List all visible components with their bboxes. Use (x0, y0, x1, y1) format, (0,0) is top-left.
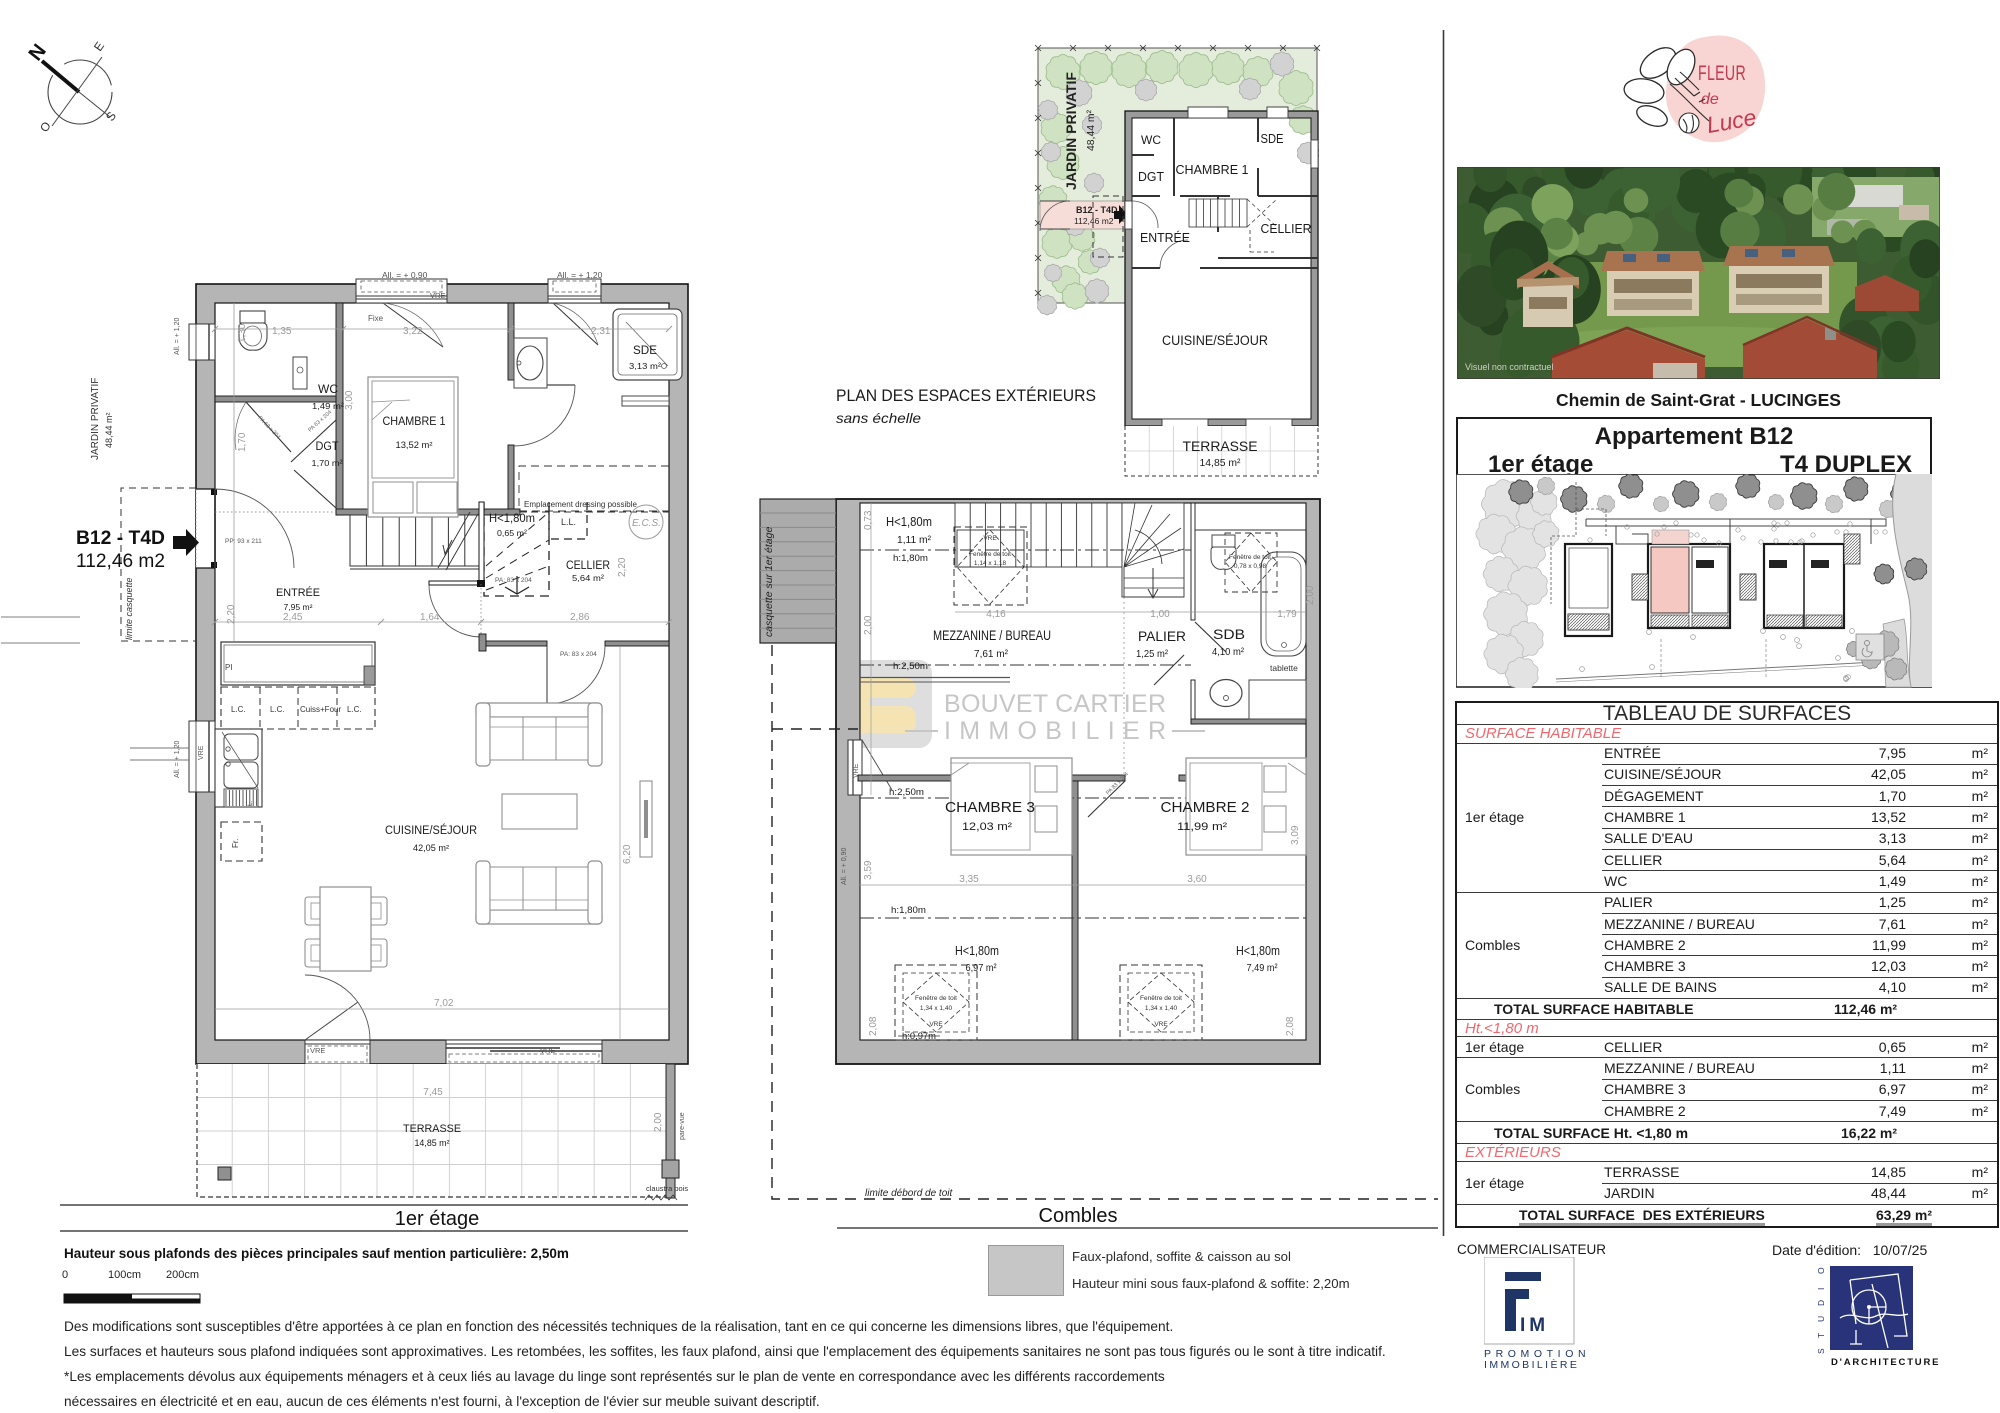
svg-text:7,45: 7,45 (423, 1087, 443, 1098)
svg-text:VRE: VRE (310, 1046, 325, 1055)
svg-text:CHAMBRE 2: CHAMBRE 2 (1161, 800, 1250, 816)
svg-text:All. = + 0,90: All. = + 0,90 (382, 270, 428, 280)
svg-text:3,59: 3,59 (863, 860, 874, 880)
svg-text:IMMOBILIER: IMMOBILIER (944, 717, 1166, 745)
svg-text:VRE: VRE (1154, 1021, 1168, 1028)
svg-text:14,85 m²: 14,85 m² (1200, 457, 1241, 469)
svg-text:1,70: 1,70 (237, 432, 248, 452)
svg-text:Fenêtre de toit: Fenêtre de toit (1229, 554, 1271, 561)
svg-text:O: O (1816, 1267, 1826, 1274)
svg-text:48,44 m²: 48,44 m² (104, 412, 114, 448)
svg-text:7,61 m²: 7,61 m² (974, 648, 1008, 660)
svg-text:Visuel non contractuel: Visuel non contractuel (1465, 362, 1553, 372)
svg-text:casquette sur 1er étage: casquette sur 1er étage (763, 527, 775, 637)
svg-text:1,64: 1,64 (420, 612, 440, 623)
svg-text:2,00: 2,00 (653, 1112, 664, 1132)
svg-text:D: D (1816, 1300, 1826, 1306)
svg-text:2,00: 2,00 (1305, 585, 1316, 605)
svg-text:3,00: 3,00 (344, 390, 355, 410)
svg-text:pare-vue: pare-vue (679, 1112, 686, 1140)
svg-text:limite casquette: limite casquette (124, 577, 134, 640)
svg-text:PA: 83 x 204: PA: 83 x 204 (495, 577, 532, 584)
svg-text:All. = + 1,20: All. = + 1,20 (174, 741, 181, 778)
svg-text:WC: WC (318, 384, 338, 396)
svg-text:limite débord de toit: limite débord de toit (865, 1188, 953, 1199)
svg-text:PA 63 x 204: PA 63 x 204 (307, 409, 333, 433)
svg-text:JARDIN PRIVATIF: JARDIN PRIVATIF (90, 378, 101, 460)
svg-text:H<1,80m: H<1,80m (886, 514, 932, 529)
svg-text:TERRASSE: TERRASSE (403, 1123, 461, 1135)
svg-text:Combles: Combles (1039, 1205, 1118, 1227)
svg-text:5,64 m²: 5,64 m² (572, 573, 604, 583)
svg-text:Fenêtre de toit: Fenêtre de toit (969, 551, 1011, 558)
svg-text:7,95 m²: 7,95 m² (284, 603, 313, 612)
svg-text:U: U (1816, 1316, 1826, 1322)
svg-text:11,99 m²: 11,99 m² (1177, 821, 1227, 833)
svg-text:B12 - T4D: B12 - T4D (1076, 205, 1118, 215)
svg-text:Cuiss+Four: Cuiss+Four (300, 705, 341, 714)
svg-text:h:1,80m: h:1,80m (891, 905, 926, 916)
svg-text:42,05 m²: 42,05 m² (413, 843, 449, 853)
svg-text:Fenêtre de toit: Fenêtre de toit (1140, 995, 1182, 1002)
svg-text:L.C.: L.C. (270, 705, 285, 714)
svg-text:claustra bois: claustra bois (646, 1184, 688, 1193)
svg-text:VRE: VRE (983, 535, 997, 542)
svg-text:E.C.S.: E.C.S. (632, 518, 661, 529)
svg-text:VRE: VRE (430, 291, 445, 300)
svg-text:2,86: 2,86 (570, 612, 590, 623)
svg-text:PP: 93 x 211: PP: 93 x 211 (225, 538, 262, 545)
svg-text:sans échelle: sans échelle (836, 410, 921, 426)
svg-text:h:2,50m: h:2,50m (893, 661, 928, 672)
svg-text:FLEUR: FLEUR (1698, 62, 1746, 85)
svg-text:H<1,80m: H<1,80m (955, 943, 999, 958)
svg-text:L.C.: L.C. (231, 705, 246, 714)
svg-text:2,45: 2,45 (283, 612, 303, 623)
svg-text:2,00: 2,00 (863, 615, 874, 635)
svg-text:Fr.: Fr. (231, 839, 240, 848)
svg-text:CUISINE/SÉJOUR: CUISINE/SÉJOUR (1162, 333, 1268, 348)
svg-text:h:0,97m: h:0,97m (902, 1031, 936, 1042)
svg-text:Emplacement dressing possible: Emplacement dressing possible (524, 500, 637, 509)
svg-text:1er étage: 1er étage (395, 1208, 480, 1230)
svg-text:4,10 m²: 4,10 m² (1212, 646, 1244, 658)
svg-text:PA: 83 x 204: PA: 83 x 204 (560, 651, 597, 658)
svg-text:CHAMBRE 1: CHAMBRE 1 (383, 414, 446, 428)
svg-text:IM: IM (1520, 1315, 1549, 1336)
svg-text:13,52 m²: 13,52 m² (396, 440, 433, 450)
svg-text:MEZZANINE / BUREAU: MEZZANINE / BUREAU (933, 628, 1051, 643)
svg-text:3,35: 3,35 (959, 874, 979, 885)
svg-text:h:2,50m: h:2,50m (889, 787, 924, 798)
svg-text:CHAMBRE 1: CHAMBRE 1 (1176, 162, 1249, 177)
svg-text:H<1,80m: H<1,80m (1236, 943, 1280, 958)
svg-text:SDE: SDE (633, 345, 657, 357)
svg-text:0,65 m²: 0,65 m² (497, 528, 527, 538)
svg-text:1,34 x 1,40: 1,34 x 1,40 (1145, 1005, 1178, 1012)
svg-text:3,09: 3,09 (1290, 825, 1301, 845)
svg-text:D'ARCHITECTURE: D'ARCHITECTURE (1831, 1357, 1940, 1368)
svg-text:0,78 x 0,98: 0,78 x 0,98 (1234, 563, 1267, 570)
svg-text:3,22: 3,22 (403, 326, 423, 337)
svg-text:JARDIN PRIVATIF: JARDIN PRIVATIF (1063, 72, 1079, 190)
svg-text:S: S (1816, 1348, 1826, 1354)
svg-text:PI: PI (225, 663, 233, 672)
svg-text:48,44 m²: 48,44 m² (1085, 110, 1097, 151)
svg-text:3,13 m²: 3,13 m² (629, 361, 661, 371)
svg-text:7,02: 7,02 (434, 998, 454, 1009)
svg-text:6,97 m²: 6,97 m² (966, 962, 997, 974)
svg-text:h:1,80m: h:1,80m (893, 553, 928, 564)
svg-text:N: N (25, 40, 51, 65)
svg-text:VRE: VRE (198, 745, 205, 760)
svg-text:All. = + 1,20: All. = + 1,20 (557, 270, 603, 280)
svg-text:PA 63 x 204: PA 63 x 204 (257, 415, 282, 440)
svg-text:Fixe: Fixe (368, 314, 384, 323)
svg-text:VRE: VRE (540, 1046, 555, 1055)
svg-text:SDE: SDE (1261, 132, 1284, 146)
svg-text:All. = + 1,20: All. = + 1,20 (174, 318, 181, 355)
svg-text:DGT: DGT (1138, 170, 1164, 184)
svg-text:All. = + 0,90: All. = + 0,90 (841, 848, 848, 885)
svg-text:S: S (103, 109, 119, 124)
svg-text:TERRASSE: TERRASSE (1183, 439, 1258, 454)
svg-text:tablette: tablette (1270, 663, 1298, 673)
svg-text:BOUVET CARTIER: BOUVET CARTIER (944, 690, 1166, 718)
svg-text:12,03 m²: 12,03 m² (962, 821, 1012, 833)
svg-text:PLAN DES ESPACES EXTÉRIEURS: PLAN DES ESPACES EXTÉRIEURS (836, 386, 1096, 405)
svg-text:DGT: DGT (316, 441, 339, 453)
svg-text:112,46 m2: 112,46 m2 (76, 551, 165, 572)
svg-text:L.C.: L.C. (347, 705, 362, 714)
svg-text:7,49 m²: 7,49 m² (1247, 962, 1278, 974)
svg-text:WC: WC (1141, 133, 1161, 147)
svg-text:PALIER: PALIER (1138, 629, 1186, 644)
svg-text:CHAMBRE 3: CHAMBRE 3 (945, 800, 1035, 816)
svg-text:6,20: 6,20 (622, 844, 633, 864)
svg-text:T: T (1816, 1333, 1826, 1338)
svg-text:VRE: VRE (929, 1021, 943, 1028)
svg-text:112,46 m2: 112,46 m2 (1074, 216, 1114, 226)
svg-text:1,25 m²: 1,25 m² (1136, 648, 1168, 660)
svg-text:I: I (1816, 1288, 1826, 1290)
svg-text:4,16: 4,16 (986, 609, 1006, 620)
svg-text:1,30: 1,30 (237, 323, 248, 343)
svg-text:3,60: 3,60 (1187, 874, 1207, 885)
svg-text:200cm: 200cm (166, 1269, 199, 1281)
svg-text:1,34 x 1,40: 1,34 x 1,40 (920, 1005, 953, 1012)
svg-text:Fenêtre de toit: Fenêtre de toit (915, 995, 957, 1002)
svg-text:2,20: 2,20 (617, 557, 628, 577)
svg-text:B12 - T4D: B12 - T4D (76, 528, 165, 549)
svg-text:CELLIER: CELLIER (1261, 221, 1312, 236)
svg-text:L.: L. (247, 800, 254, 806)
svg-text:100cm: 100cm (108, 1269, 141, 1281)
svg-text:1,14 x 1,18: 1,14 x 1,18 (974, 560, 1007, 567)
svg-text:1,11 m²: 1,11 m² (897, 534, 931, 546)
svg-text:ENTRÉE: ENTRÉE (1140, 230, 1190, 245)
svg-text:1,79: 1,79 (1277, 609, 1297, 620)
svg-text:O: O (37, 119, 54, 135)
svg-text:2,08: 2,08 (1285, 1016, 1296, 1036)
svg-text:14,85 m²: 14,85 m² (415, 1138, 450, 1148)
svg-text:IMMOBILIÈRE: IMMOBILIÈRE (1484, 1358, 1579, 1369)
svg-text:ENTRÉE: ENTRÉE (276, 586, 320, 599)
svg-text:2,20: 2,20 (226, 604, 237, 624)
svg-text:H<1,80m: H<1,80m (489, 511, 535, 525)
svg-text:L.L.: L.L. (561, 517, 576, 527)
svg-text:0,73: 0,73 (863, 510, 874, 530)
svg-text:1,70 m²: 1,70 m² (312, 458, 343, 468)
svg-text:1,00: 1,00 (1150, 609, 1170, 620)
svg-text:2,31: 2,31 (591, 326, 611, 337)
svg-text:SDB: SDB (1213, 627, 1245, 642)
svg-text:0: 0 (62, 1269, 68, 1281)
svg-text:CUISINE/SÉJOUR: CUISINE/SÉJOUR (385, 824, 477, 837)
svg-text:2,08: 2,08 (868, 1016, 879, 1036)
svg-text:CELLIER: CELLIER (566, 558, 610, 572)
svg-text:E: E (91, 39, 107, 54)
svg-text:1,35: 1,35 (272, 326, 292, 337)
svg-text:1,49 m²: 1,49 m² (312, 401, 344, 411)
